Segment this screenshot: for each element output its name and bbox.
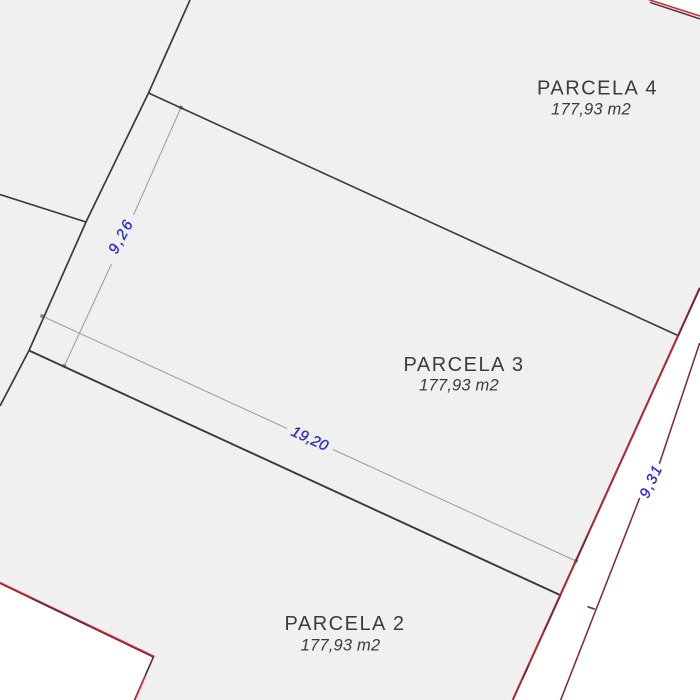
svg-text:177,93 m2: 177,93 m2 xyxy=(419,377,499,395)
svg-text:177,93 m2: 177,93 m2 xyxy=(551,101,631,119)
svg-text:177,93 m2: 177,93 m2 xyxy=(301,637,381,655)
svg-text:PARCELA 2: PARCELA 2 xyxy=(285,613,406,635)
svg-text:PARCELA 3: PARCELA 3 xyxy=(404,354,525,376)
svg-text:PARCELA 4: PARCELA 4 xyxy=(537,78,658,100)
